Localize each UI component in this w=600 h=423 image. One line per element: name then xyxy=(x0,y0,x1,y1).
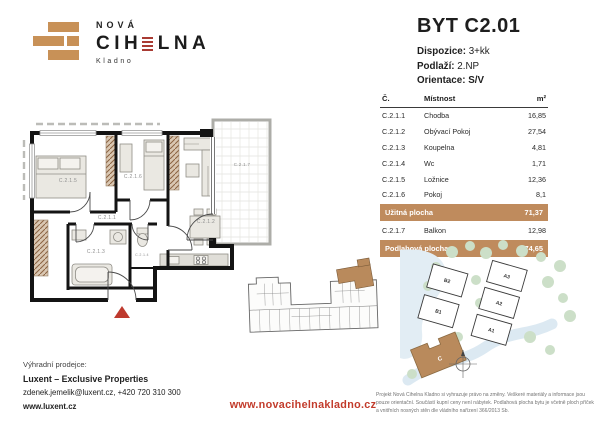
disclaimer-text: Projekt Nová Cihelna Kladno si vyhrazuje… xyxy=(376,392,595,415)
row-room: Pokoj xyxy=(424,190,506,199)
row-room: Wc xyxy=(424,159,506,168)
row-area: 12,36 xyxy=(506,175,546,184)
row-no: C.2.1.4 xyxy=(382,159,424,168)
building-floor-overview xyxy=(243,252,383,348)
podlazi-value: 2.NP xyxy=(457,61,479,72)
row-room: Balkon xyxy=(424,226,506,235)
apartment-header: BYT C2.01 Dispozice: 3+kk Podlaží: 2.NP … xyxy=(417,15,520,89)
orientace-line: Orientace: S/V xyxy=(417,74,520,89)
usable-area-label: Užitná plocha xyxy=(385,208,503,217)
dispozice-line: Dispozice: 3+kk xyxy=(417,45,520,60)
orientace-value: S/V xyxy=(468,75,484,86)
seller-name: Luxent – Exclusive Properties xyxy=(23,374,181,384)
col-room: Místnost xyxy=(424,94,506,103)
room-label-wc: C.2.1.4 xyxy=(135,253,149,257)
room-label-koupelna: C.2.1.3 xyxy=(87,249,105,255)
room-label-loznice: C.2.1.5 xyxy=(59,178,77,184)
row-room: Chodba xyxy=(424,111,506,120)
table-row: C.2.1.2Obývací Pokoj27,54 xyxy=(380,124,548,140)
usable-area-value: 71,37 xyxy=(503,208,543,217)
row-area: 12,98 xyxy=(506,226,546,235)
podlazi-line: Podlaží: 2.NP xyxy=(417,60,520,75)
brand-line-top: NOVÁ xyxy=(96,20,210,30)
project-website-link[interactable]: www.novacihelnakladno.cz xyxy=(213,399,393,411)
site-plan: B2 B1 A3 A2 A1 C xyxy=(400,240,586,390)
col-number: Č. xyxy=(382,94,424,103)
room-label-obyvaci: C.2.1.2 xyxy=(197,219,215,225)
table-row: C.2.1.3Koupelna4,81 xyxy=(380,140,548,156)
brand-main-post: LNA xyxy=(158,33,211,55)
seller-contact[interactable]: zdenek.jemelik@luxent.cz, +420 720 310 3… xyxy=(23,388,181,397)
table-row: C.2.1.4Wc1,71 xyxy=(380,155,548,171)
row-area: 4,81 xyxy=(506,143,546,152)
row-area: 27,54 xyxy=(506,127,546,136)
row-no: C.2.1.6 xyxy=(382,190,424,199)
brand-line-sub: Kladno xyxy=(96,58,210,65)
col-area: m² xyxy=(506,94,546,103)
row-no: C.2.1.5 xyxy=(382,175,424,184)
brick-logo-icon xyxy=(33,16,85,64)
podlazi-label: Podlaží: xyxy=(417,61,455,72)
table-row: C.2.1.5Ložnice12,36 xyxy=(380,171,548,187)
row-area: 1,71 xyxy=(506,159,546,168)
seller-label: Výhradní prodejce: xyxy=(23,360,181,369)
room-label-balkon: C.2.1.7 xyxy=(234,162,251,167)
brick-e-icon xyxy=(142,37,153,51)
room-table: Č. Místnost m² C.2.1.1Chodba16,85 C.2.1.… xyxy=(380,92,548,258)
brand-wordmark: NOVÁ CIH LNA Kladno xyxy=(96,16,210,65)
seller-website-link[interactable]: www.luxent.cz xyxy=(23,402,181,411)
row-area: 16,85 xyxy=(506,111,546,120)
balcony-area xyxy=(213,120,270,244)
apartment-title: BYT C2.01 xyxy=(417,15,520,38)
row-room: Ložnice xyxy=(424,175,506,184)
table-row-balcony: C.2.1.7Balkon12,98 xyxy=(380,223,548,239)
row-no: C.2.1.1 xyxy=(382,111,424,120)
flyer-page: NOVÁ CIH LNA Kladno BYT C2.01 Dispozice:… xyxy=(0,0,600,423)
seller-block: Výhradní prodejce: Luxent – Exclusive Pr… xyxy=(23,360,181,411)
orientace-label: Orientace: xyxy=(417,75,465,86)
row-no: C.2.1.7 xyxy=(382,226,424,235)
brand-main-pre: CIH xyxy=(96,33,142,55)
room-label-chodba: C.2.1.1 xyxy=(98,215,116,221)
room-label-pokoj: C.2.1.6 xyxy=(124,174,142,180)
table-row: C.2.1.6Pokoj8,1 xyxy=(380,187,548,203)
row-room: Obývací Pokoj xyxy=(424,127,506,136)
room-table-header: Č. Místnost m² xyxy=(380,92,548,108)
dispozice-value: 3+kk xyxy=(469,46,490,57)
entrance-arrow-icon xyxy=(114,306,130,318)
brand-logo: NOVÁ CIH LNA Kladno xyxy=(33,16,210,65)
table-row: C.2.1.1Chodba16,85 xyxy=(380,108,548,124)
dispozice-label: Dispozice: xyxy=(417,46,466,57)
row-no: C.2.1.3 xyxy=(382,143,424,152)
row-room: Koupelna xyxy=(424,143,506,152)
brand-line-main: CIH LNA xyxy=(96,33,210,55)
row-area: 8,1 xyxy=(506,190,546,199)
usable-area-row: Užitná plocha71,37 xyxy=(380,204,548,221)
row-no: C.2.1.2 xyxy=(382,127,424,136)
